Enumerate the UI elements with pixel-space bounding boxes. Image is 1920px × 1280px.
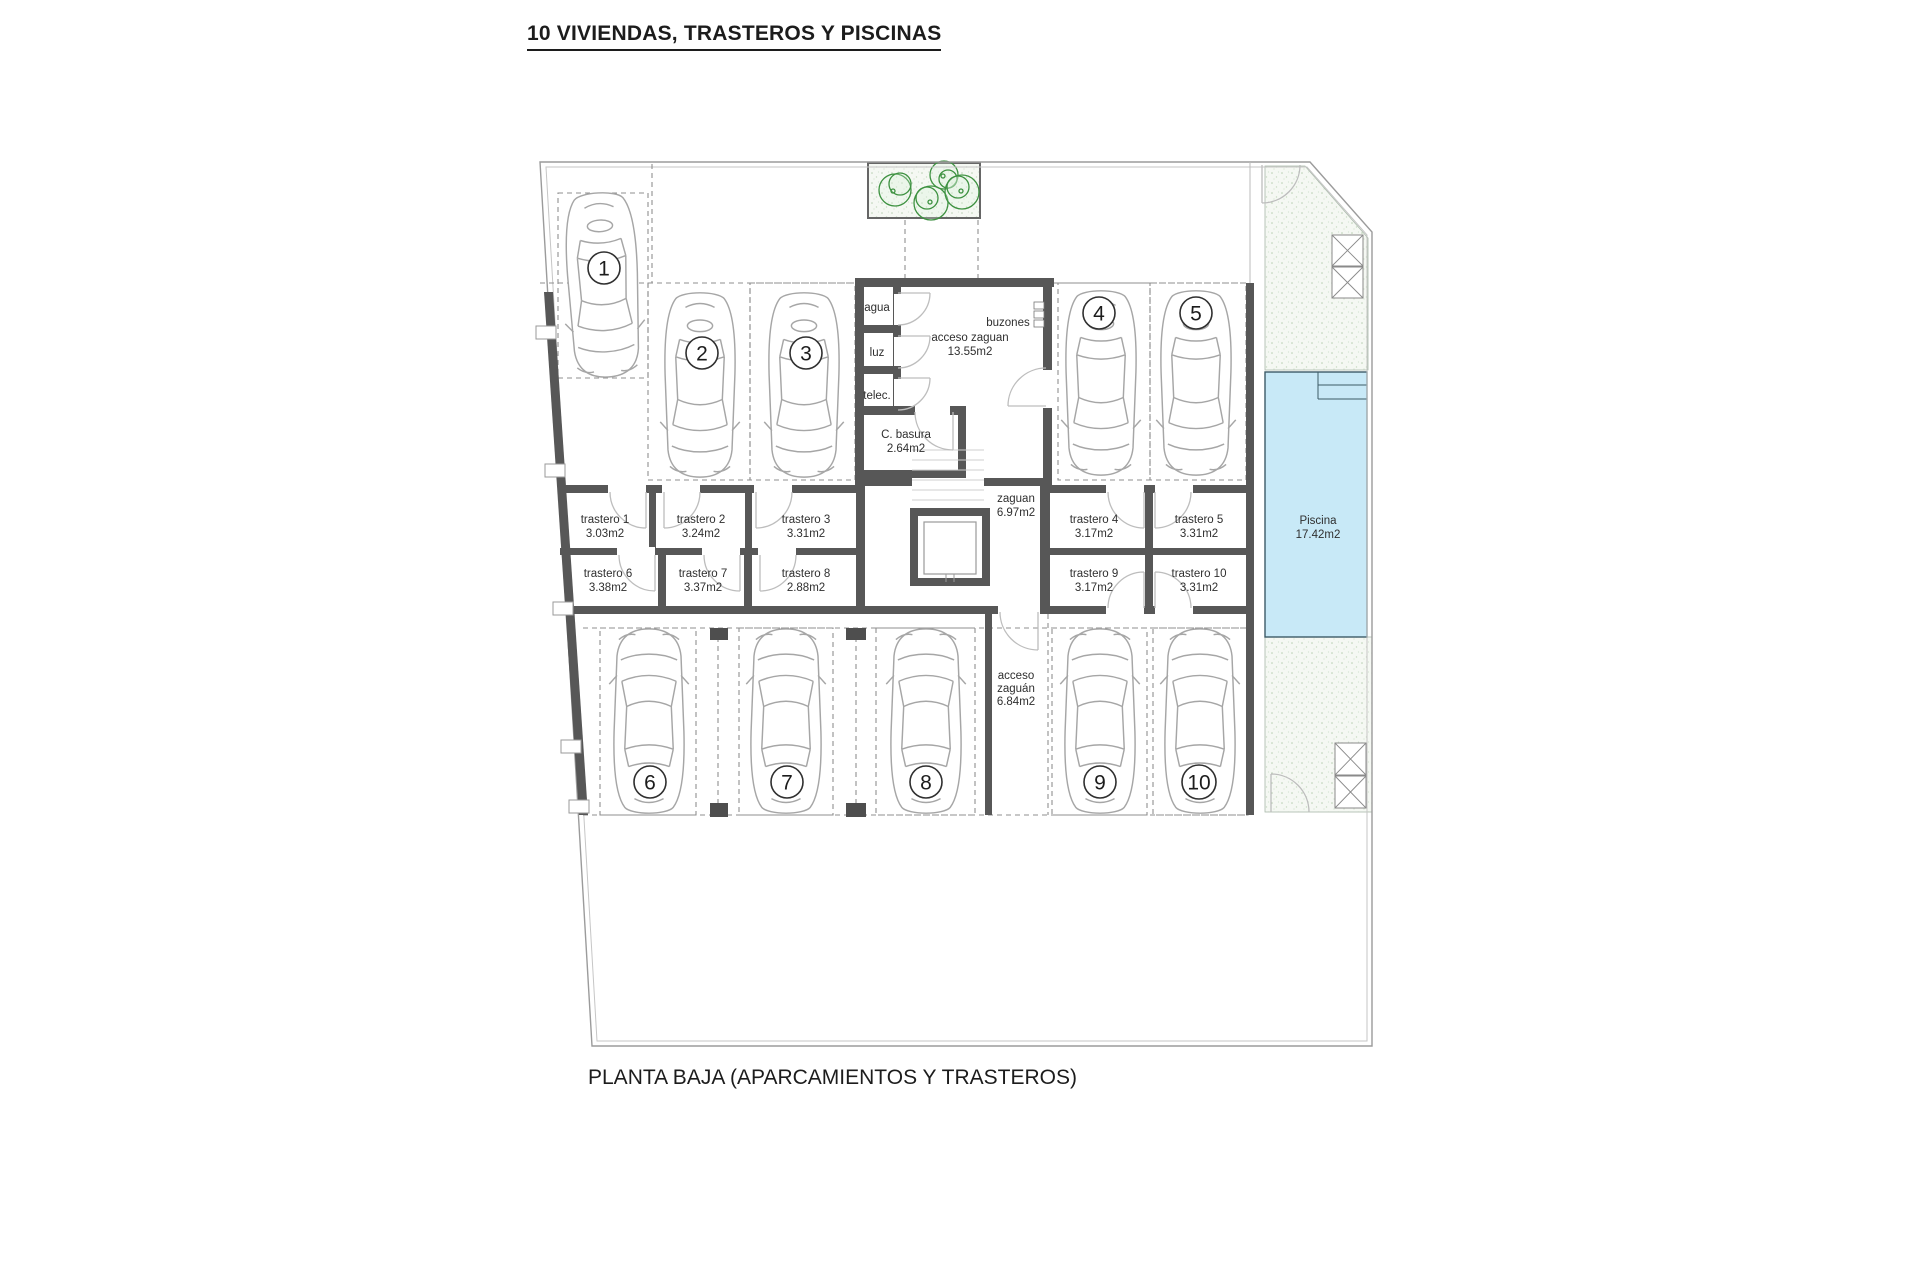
trastero-5-area: 3.31m2 — [1180, 528, 1218, 540]
pool-label: Piscina — [1299, 515, 1337, 527]
trastero-2-label: trastero 2 — [677, 514, 726, 526]
zaguan-label: zaguan — [997, 493, 1035, 505]
trastero-3-label: trastero 3 — [782, 514, 831, 526]
trastero-10-area: 3.31m2 — [1180, 582, 1218, 594]
trastero-9-area: 3.17m2 — [1075, 582, 1113, 594]
site-boundary-inner — [546, 167, 1367, 1041]
elevator — [924, 522, 976, 582]
room-telec-label: telec. — [863, 390, 891, 402]
trastero-1-area: 3.03m2 — [586, 528, 624, 540]
mailboxes — [1034, 302, 1044, 327]
trastero-1-label: trastero 1 — [581, 514, 630, 526]
parking-number-4: 4 — [1093, 303, 1105, 326]
parking-number-6: 6 — [644, 772, 656, 795]
parking-number-8: 8 — [920, 772, 932, 795]
hall-label: acceso zaguan — [931, 332, 1008, 344]
parking-number-3: 3 — [800, 343, 812, 366]
parking-number-10: 10 — [1187, 772, 1210, 795]
room-luz-label: luz — [870, 347, 885, 359]
parking-number-7: 7 — [781, 772, 793, 795]
pool: Piscina 17.42m2 — [1265, 372, 1367, 637]
trastero-9-label: trastero 9 — [1070, 568, 1119, 580]
floor-plan-page: { "title": "10 VIVIENDAS, TRASTEROS Y PI… — [0, 0, 1920, 1280]
trastero-6-label: trastero 6 — [584, 568, 633, 580]
pool-area-label: 17.42m2 — [1296, 529, 1341, 541]
trastero-3-area: 3.31m2 — [787, 528, 825, 540]
parking-number-1: 1 — [598, 258, 610, 281]
plan-caption: PLANTA BAJA (APARCAMIENTOS Y TRASTEROS) — [588, 1066, 1077, 1090]
buzones-label: buzones — [986, 317, 1030, 329]
parking-number-2: 2 — [696, 343, 708, 366]
trastero-4-area: 3.17m2 — [1075, 528, 1113, 540]
room-agua-label: agua — [864, 302, 890, 314]
car-icon — [764, 293, 844, 477]
parking-number-5: 5 — [1190, 303, 1202, 326]
trastero-8-area: 2.88m2 — [787, 582, 825, 594]
parking-number-9: 9 — [1094, 772, 1106, 795]
pool-water — [1265, 372, 1367, 637]
trastero-8-label: trastero 8 — [782, 568, 831, 580]
trastero-7-area: 3.37m2 — [684, 582, 722, 594]
trastero-2-area: 3.24m2 — [682, 528, 720, 540]
room-basura-label: C. basura — [881, 429, 931, 441]
corridor-label-1: acceso — [998, 670, 1034, 682]
trastero-10-label: trastero 10 — [1172, 568, 1227, 580]
trastero-6-area: 3.38m2 — [589, 582, 627, 594]
car-icon — [660, 293, 740, 477]
hall-area: 13.55m2 — [948, 346, 993, 358]
trastero-7-label: trastero 7 — [679, 568, 728, 580]
trastero-5-label: trastero 5 — [1175, 514, 1224, 526]
zaguan-area: 6.97m2 — [997, 507, 1035, 519]
trastero-4-label: trastero 4 — [1070, 514, 1119, 526]
corridor-label-2: zaguán — [997, 683, 1035, 695]
corridor-area: 6.84m2 — [997, 696, 1035, 708]
planter — [868, 161, 980, 220]
room-basura-area: 2.64m2 — [887, 443, 925, 455]
car-icon — [559, 191, 648, 379]
